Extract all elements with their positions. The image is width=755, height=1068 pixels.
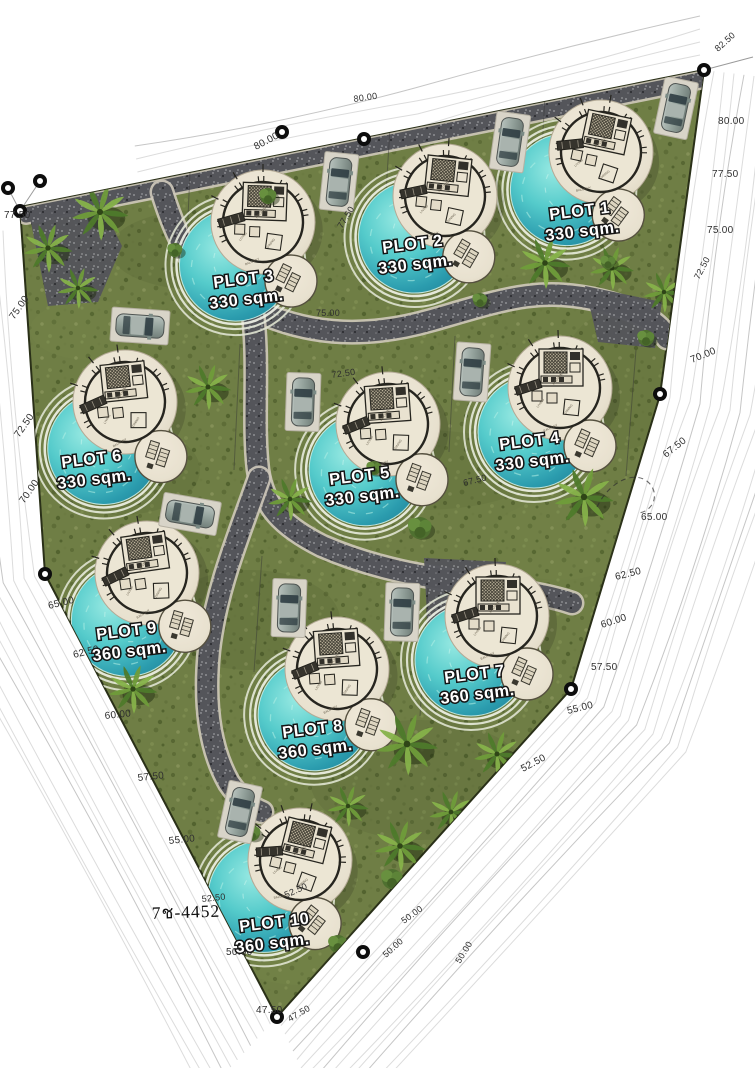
contour-label: 47.50 [256,1005,283,1016]
site-plan-canvas: KITCHENLIVINGDININGBALCONYKITCHENLIVINGD… [0,0,755,1068]
car-plot-6 [110,307,170,345]
contour-label: 47.50 [286,1003,312,1024]
survey-marker [33,174,47,188]
contour-label: 82.50 [713,30,738,54]
survey-marker [653,387,667,401]
contour-label: 50.00 [453,939,474,965]
survey-marker [564,682,578,696]
contour-label: 75.00 [707,225,734,236]
kitchen-bar [256,846,283,857]
survey-marker [38,567,52,581]
parcel-number-label: 7ช-4452 [151,901,220,923]
survey-marker [356,945,370,959]
contour-label: 50.00 [381,936,406,960]
contour-label: 80.00 [252,130,281,152]
car-plot-2 [489,111,531,173]
survey-marker [1,181,15,195]
contour-label: 55.00 [566,700,595,717]
car-plot-7 [384,582,420,641]
contour-label: 80.00 [718,116,745,127]
car-plot-4 [453,342,491,402]
contour-label: 77.50 [712,169,739,180]
contour-label: 60.00 [600,612,629,631]
car-plot-8 [271,578,307,637]
contour-label: 52.50 [519,752,548,774]
site-plan-page: KITCHENLIVINGDININGBALCONYKITCHENLIVINGD… [0,0,755,1068]
contour-label: 77.50 [4,210,31,221]
contour-label: 57.50 [591,662,618,673]
contour-label: 65.00 [641,512,668,523]
survey-marker [697,63,711,77]
contour-label: 62.50 [614,566,643,583]
survey-marker [357,132,371,146]
car-plot-5 [285,372,321,431]
contour-label: 75.00 [316,308,340,318]
car-plot-3 [319,151,359,212]
contour-label: 70.00 [17,478,41,506]
contour-label: 80.00 [353,91,378,104]
